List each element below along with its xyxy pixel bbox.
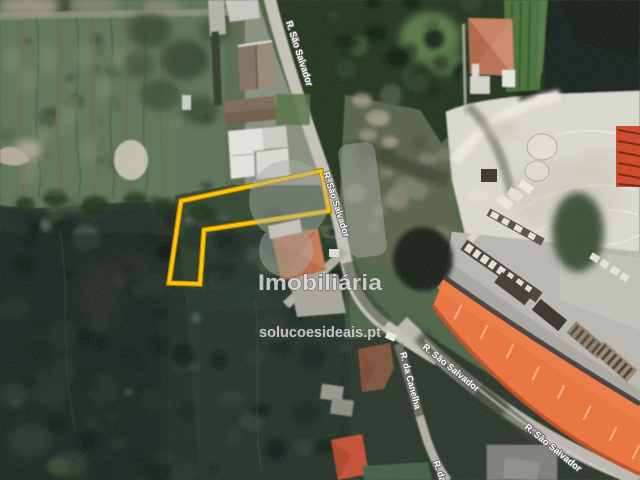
svg-text:Imobiliária: Imobiliária [258,270,383,295]
svg-text:solucoesideais.pt: solucoesideais.pt [259,325,381,341]
